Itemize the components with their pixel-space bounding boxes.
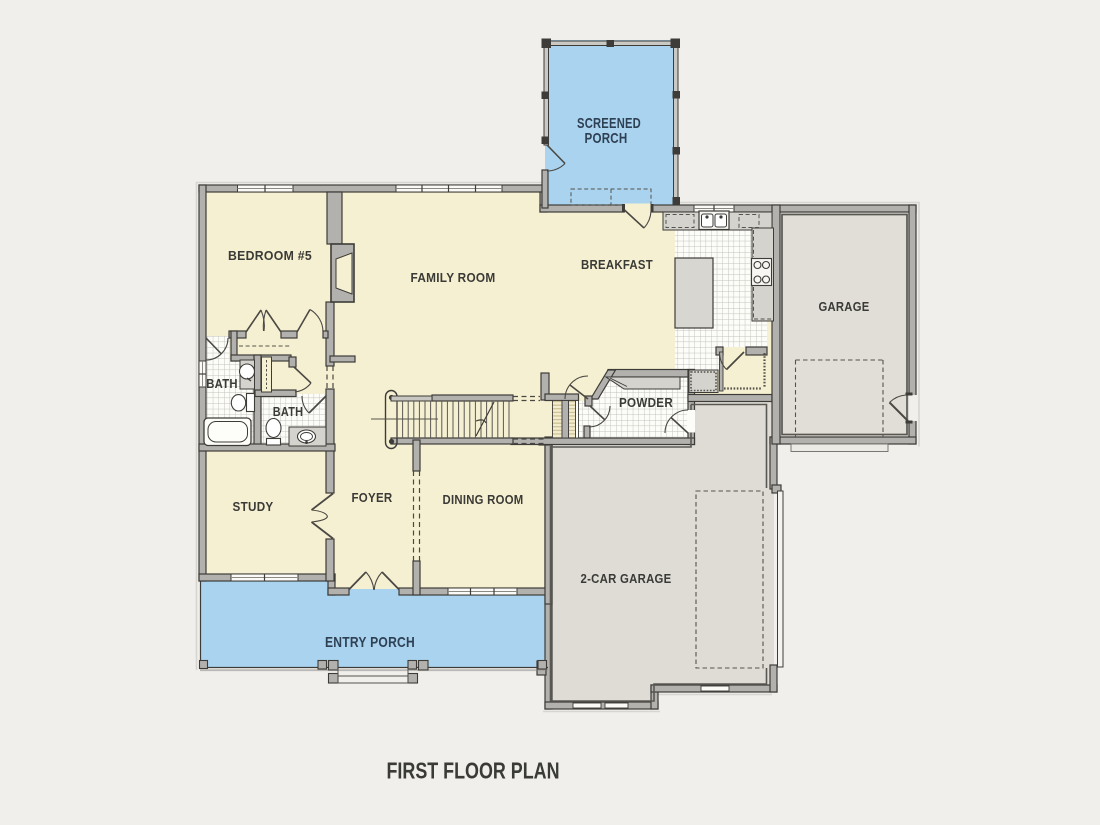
svg-text:GARAGE: GARAGE [819, 300, 870, 314]
svg-text:2-CAR GARAGE: 2-CAR GARAGE [581, 572, 672, 586]
svg-text:SCREENED: SCREENED [577, 116, 641, 132]
svg-text:DINING ROOM: DINING ROOM [443, 493, 524, 507]
svg-text:POWDER: POWDER [619, 396, 673, 410]
svg-text:BEDROOM #5: BEDROOM #5 [228, 249, 312, 263]
svg-text:FAMILY ROOM: FAMILY ROOM [411, 271, 496, 285]
svg-text:FIRST FLOOR PLAN: FIRST FLOOR PLAN [387, 758, 560, 784]
svg-text:STUDY: STUDY [233, 500, 274, 514]
svg-text:FOYER: FOYER [352, 491, 393, 505]
svg-text:BATH: BATH [273, 405, 304, 419]
svg-text:BATH: BATH [206, 377, 238, 391]
svg-text:PORCH: PORCH [585, 131, 628, 147]
svg-text:ENTRY PORCH: ENTRY PORCH [325, 635, 415, 651]
svg-text:BREAKFAST: BREAKFAST [581, 258, 653, 272]
